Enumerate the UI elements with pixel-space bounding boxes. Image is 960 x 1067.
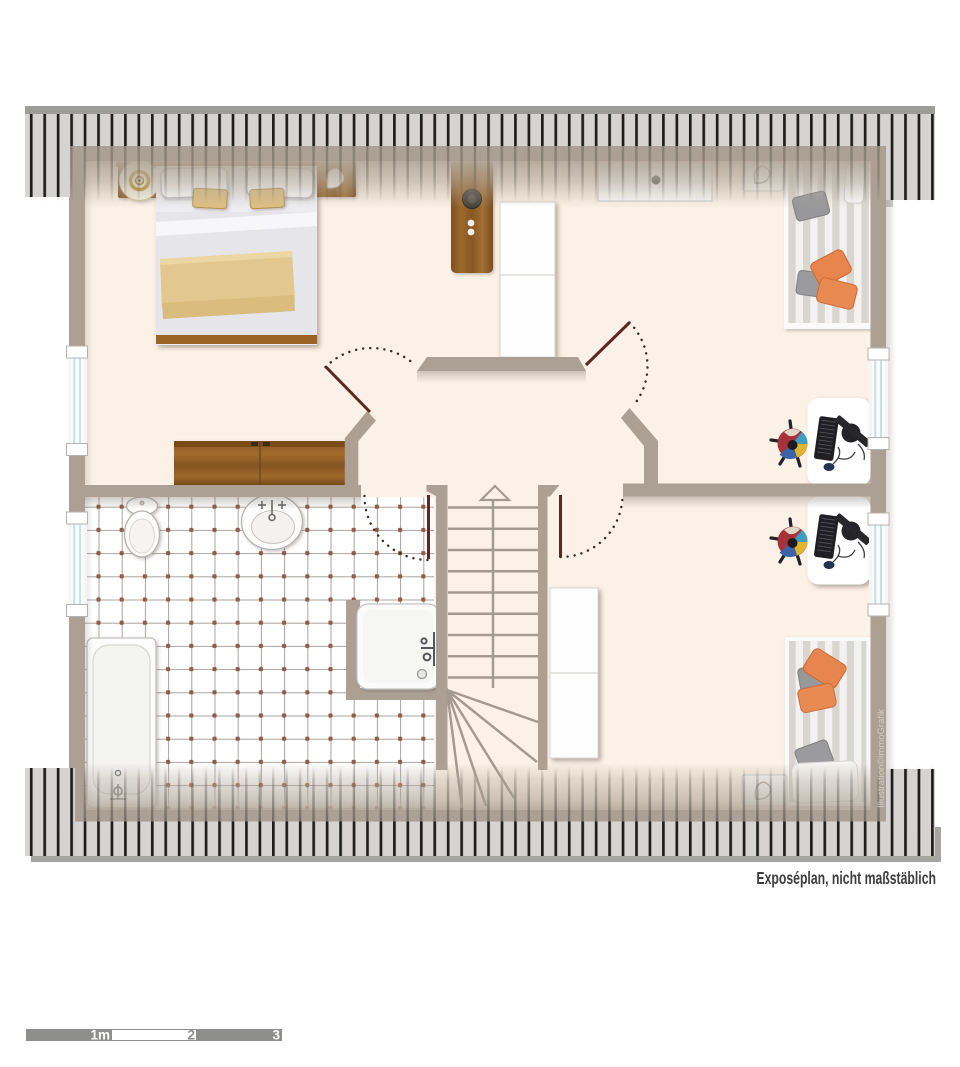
- svg-text:1m: 1m: [90, 1028, 110, 1043]
- svg-text:Illustration©immoGrafik: Illustration©immoGrafik: [876, 709, 887, 808]
- svg-text:2: 2: [187, 1028, 195, 1043]
- svg-text:Exposéplan, nicht maßstäblich: Exposéplan, nicht maßstäblich: [756, 869, 936, 889]
- svg-text:3: 3: [272, 1028, 280, 1043]
